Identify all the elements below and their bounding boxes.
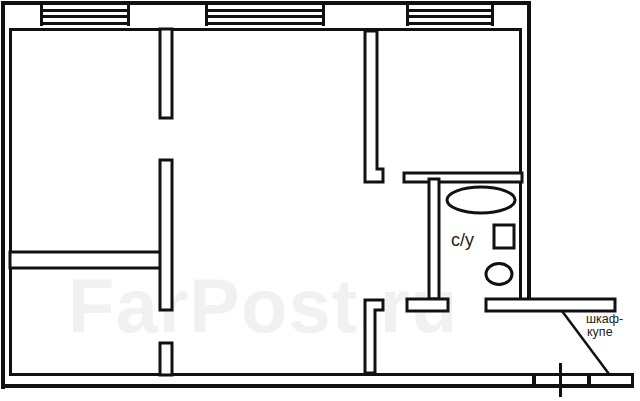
bathroom-left-wall [429, 179, 439, 299]
central-partition-upper [365, 31, 383, 182]
window-2 [205, 2, 325, 26]
left-partition-middle-segment [160, 160, 172, 310]
bathroom-top-wall [404, 173, 522, 182]
window-3 [406, 2, 494, 26]
top-inner-wall [9, 28, 520, 31]
horizontal-partition-left [10, 252, 161, 268]
window-3-glass-line-2 [406, 15, 494, 18]
bathroom-door-jamb-bar [407, 299, 448, 311]
left-partition-lower-segment [160, 343, 172, 375]
top-outer-wall [1, 1, 531, 5]
window-2-sill [205, 22, 325, 25]
toilet-ellipse [486, 264, 512, 285]
window-3-glass-line-1 [406, 9, 494, 12]
bottom-wall-end-cap [631, 373, 634, 388]
bottom-wall-divider-right [587, 373, 591, 388]
left-partition-upper-segment [160, 29, 172, 118]
wardrobe-label-line2: купе [587, 325, 613, 339]
window-1-sill [40, 22, 130, 25]
entry-door-tick [559, 363, 562, 397]
bottom-outer-wall [1, 384, 634, 388]
right-outer-wall [527, 1, 531, 311]
left-inner-wall [9, 28, 12, 376]
left-outer-wall [1, 1, 5, 389]
window-2-glass-line-1 [205, 9, 325, 12]
window-3-sill [406, 22, 494, 25]
window-1 [40, 2, 130, 26]
wardrobe-label-line1: шкаф- [586, 312, 623, 326]
bathtub-ellipse [447, 187, 515, 213]
wardrobe-shelf [486, 299, 615, 311]
window-1-glass-line-1 [40, 9, 130, 12]
right-inner-wall [519, 28, 522, 301]
window-2-glass-line-2 [205, 15, 325, 18]
window-1-glass-line-2 [40, 15, 130, 18]
appliance-square [494, 225, 514, 248]
bottom-wall-divider-left [532, 373, 536, 388]
bottom-inner-wall [9, 373, 634, 376]
bathroom-label: с/у [451, 230, 474, 250]
watermark-text: FarPost.ru [68, 263, 458, 348]
floor-plan-canvas: FarPost.ru [0, 0, 640, 401]
